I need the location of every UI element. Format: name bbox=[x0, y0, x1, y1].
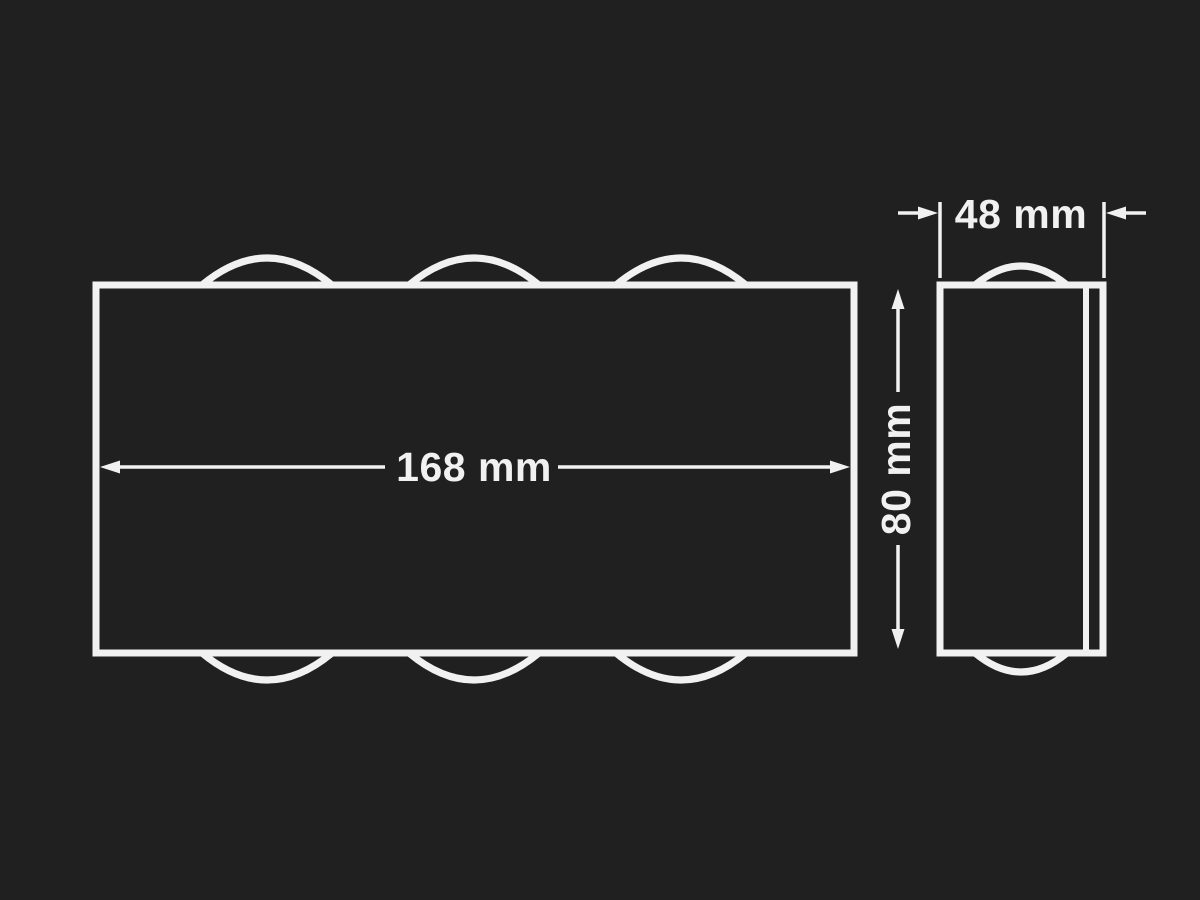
dimension-drawing: 168 mm 80 mm bbox=[0, 0, 1200, 900]
front-lens-arc-top-3 bbox=[616, 258, 746, 285]
front-lens-arc-bottom-3 bbox=[616, 653, 746, 680]
depth-dimension-label: 48 mm bbox=[955, 191, 1087, 237]
width-dimension: 168 mm bbox=[100, 444, 850, 490]
width-dimension-arrow-left-icon bbox=[100, 461, 120, 474]
front-view: 168 mm bbox=[96, 258, 854, 680]
front-lens-arc-bottom-2 bbox=[409, 653, 539, 680]
front-lens-arc-top-1 bbox=[202, 258, 332, 285]
depth-dimension-arrow-left-icon bbox=[1106, 207, 1126, 220]
height-dimension-label: 80 mm bbox=[873, 403, 919, 535]
technical-drawing-canvas: 168 mm 80 mm bbox=[0, 0, 1200, 900]
height-dimension-arrow-down-icon bbox=[892, 629, 905, 649]
front-lens-arc-bottom-1 bbox=[202, 653, 332, 680]
width-dimension-arrow-right-icon bbox=[830, 461, 850, 474]
depth-dimension-arrow-right-icon bbox=[918, 207, 938, 220]
height-dimension-arrow-up-icon bbox=[892, 289, 905, 309]
width-dimension-label: 168 mm bbox=[396, 444, 552, 490]
height-dimension: 80 mm bbox=[873, 289, 919, 649]
side-view: 80 mm 48 mm bbox=[873, 191, 1146, 672]
side-view-outline bbox=[940, 285, 1103, 653]
front-lens-arc-top-2 bbox=[409, 258, 539, 285]
